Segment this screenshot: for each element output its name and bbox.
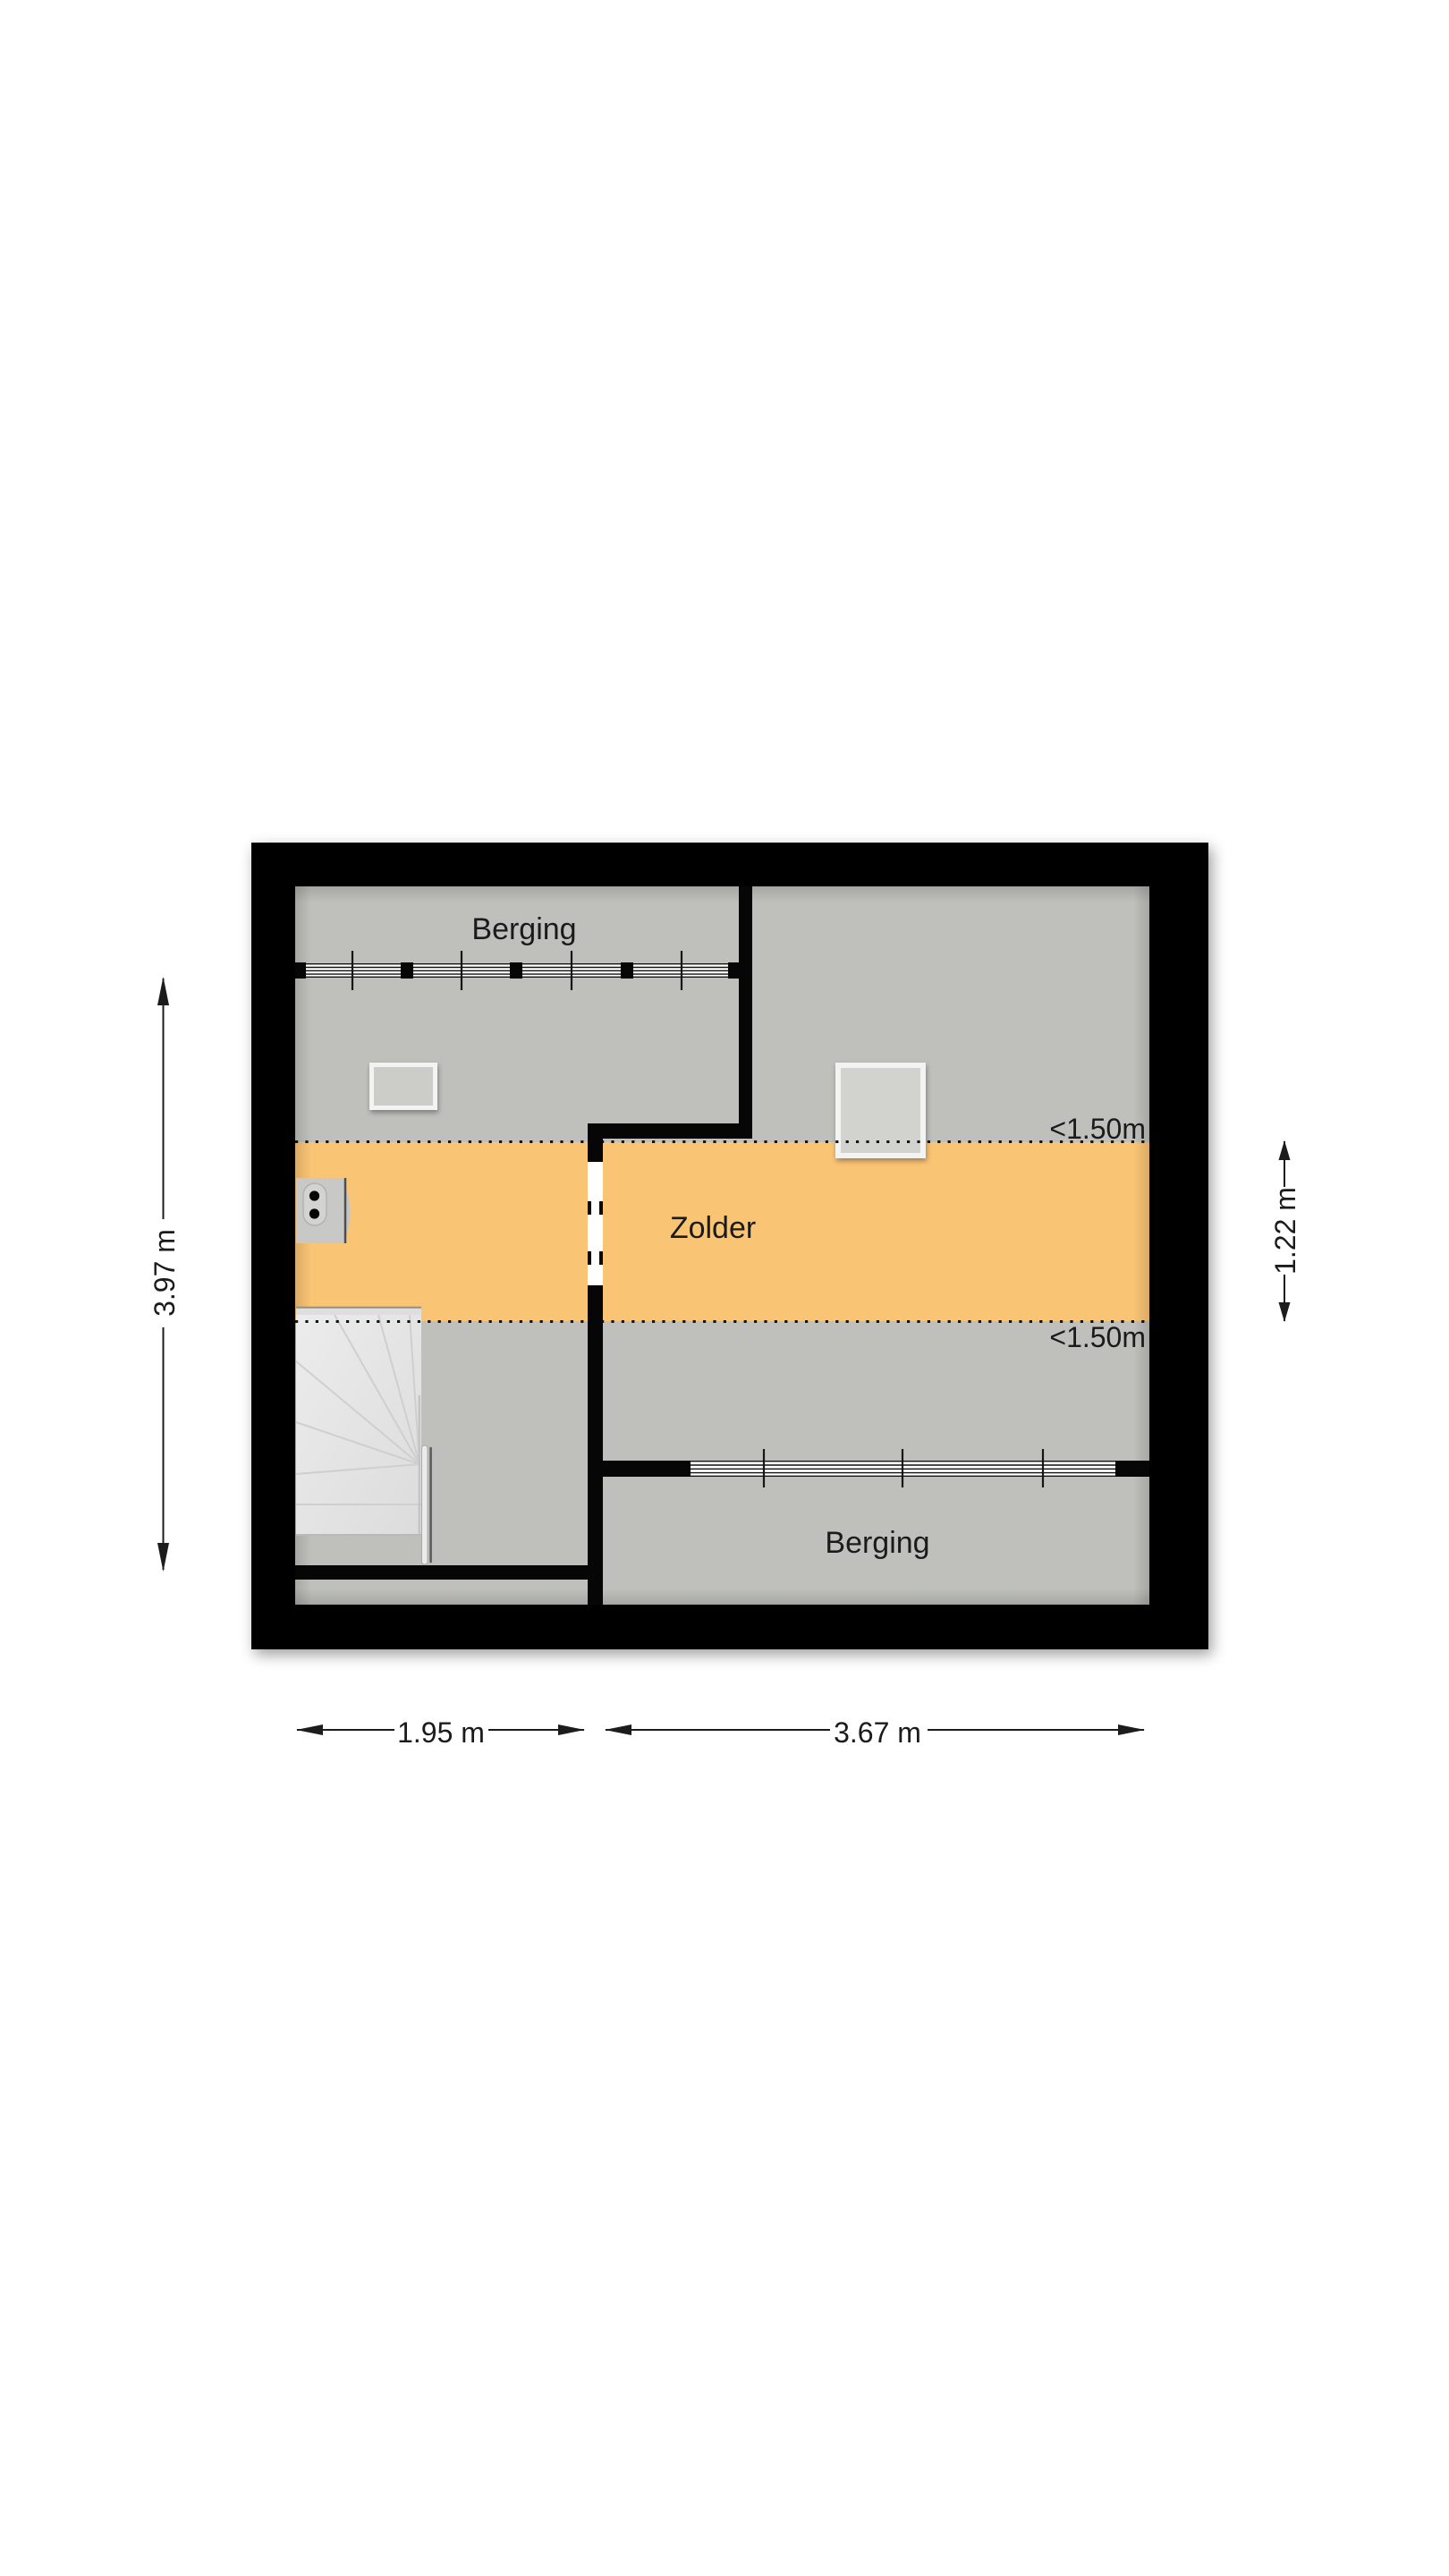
svg-text:<1.50m: <1.50m — [1049, 1113, 1146, 1145]
svg-text:<1.50m: <1.50m — [1049, 1321, 1146, 1353]
svg-text:1.95 m: 1.95 m — [397, 1716, 485, 1749]
svg-text:Berging: Berging — [825, 1526, 929, 1560]
svg-text:3.67 m: 3.67 m — [834, 1716, 921, 1749]
svg-text:Zolder: Zolder — [670, 1211, 756, 1245]
svg-text:Berging: Berging — [471, 912, 576, 946]
svg-text:1.22 m: 1.22 m — [1269, 1187, 1301, 1275]
svg-text:3.97 m: 3.97 m — [148, 1229, 181, 1317]
